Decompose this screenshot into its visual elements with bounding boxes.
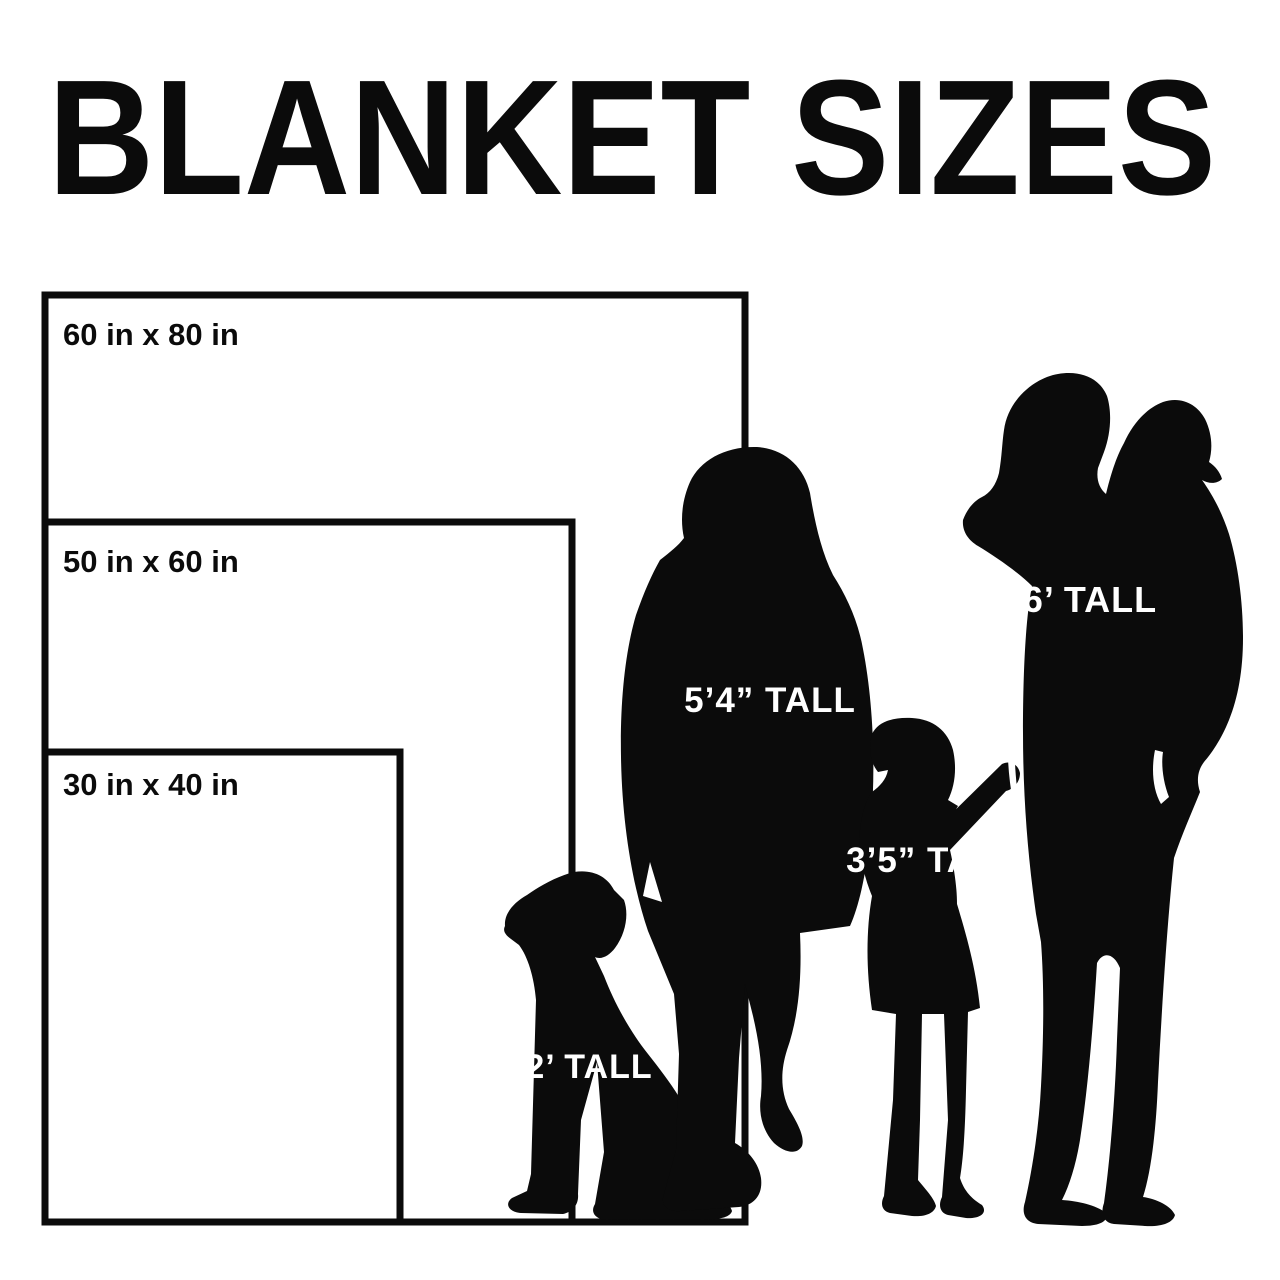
dog-height-label: 2’ TALL [525, 1048, 652, 1086]
man-height-label: 6’ TALL [1023, 579, 1157, 620]
blanket-box-30x40 [45, 752, 400, 1222]
child-height-label: 3’5” TALL [846, 841, 1018, 880]
child-silhouette [860, 718, 1021, 1218]
man-silhouette [963, 373, 1243, 1226]
blanket-label-30x40: 30 in x 40 in [63, 767, 239, 802]
blanket-label-50x60: 50 in x 60 in [63, 544, 239, 579]
woman-height-label: 5’4” TALL [684, 681, 856, 720]
page-title: BLANKET SIZES [48, 46, 1216, 229]
blanket-label-60x80: 60 in x 80 in [63, 317, 239, 352]
infographic-canvas: BLANKET SIZES 60 in x 80 in 50 in x 60 i… [0, 0, 1280, 1280]
man-arm-gap [1008, 704, 1020, 809]
blanket-sizes-infographic: BLANKET SIZES 60 in x 80 in 50 in x 60 i… [0, 0, 1280, 1280]
